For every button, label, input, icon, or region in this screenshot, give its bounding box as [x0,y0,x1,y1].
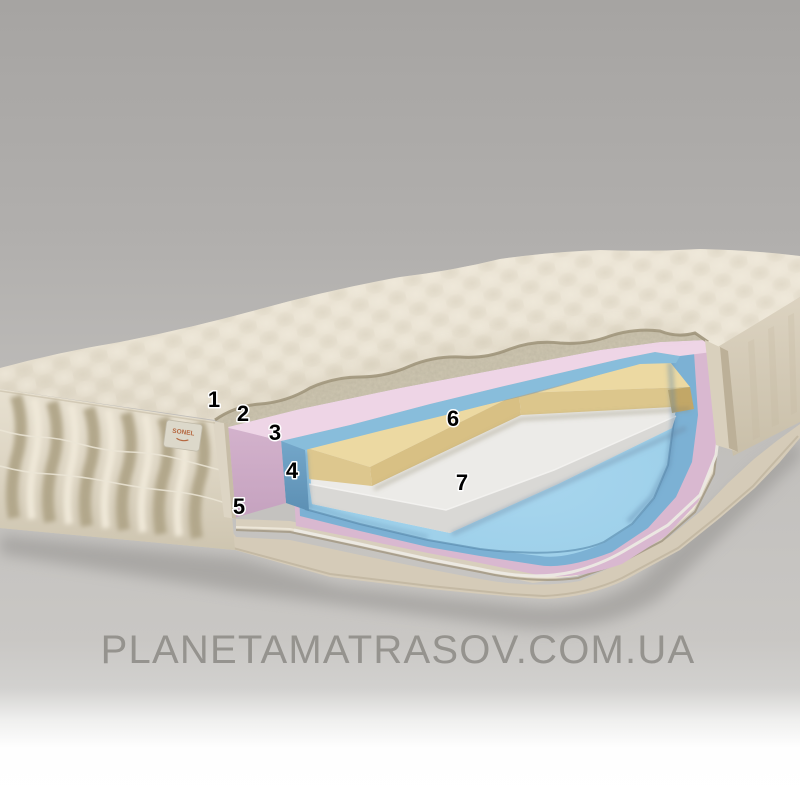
svg-text:PLANETAMATRASOV.COM.UA: PLANETAMATRASOV.COM.UA [101,628,696,672]
svg-text:1: 1 [208,387,220,412]
svg-text:4: 4 [286,458,299,483]
svg-text:6: 6 [447,406,459,431]
svg-text:2: 2 [237,401,249,426]
svg-text:3: 3 [269,420,281,445]
svg-text:7: 7 [456,470,468,495]
svg-text:5: 5 [233,494,245,519]
